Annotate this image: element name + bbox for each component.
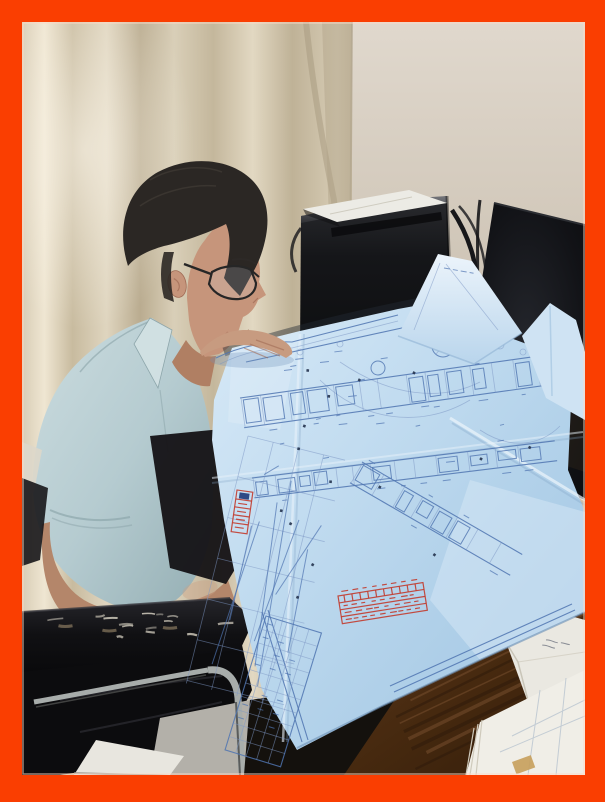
photo (0, 0, 605, 802)
office-chair (22, 598, 258, 776)
framed-photo (0, 0, 605, 802)
